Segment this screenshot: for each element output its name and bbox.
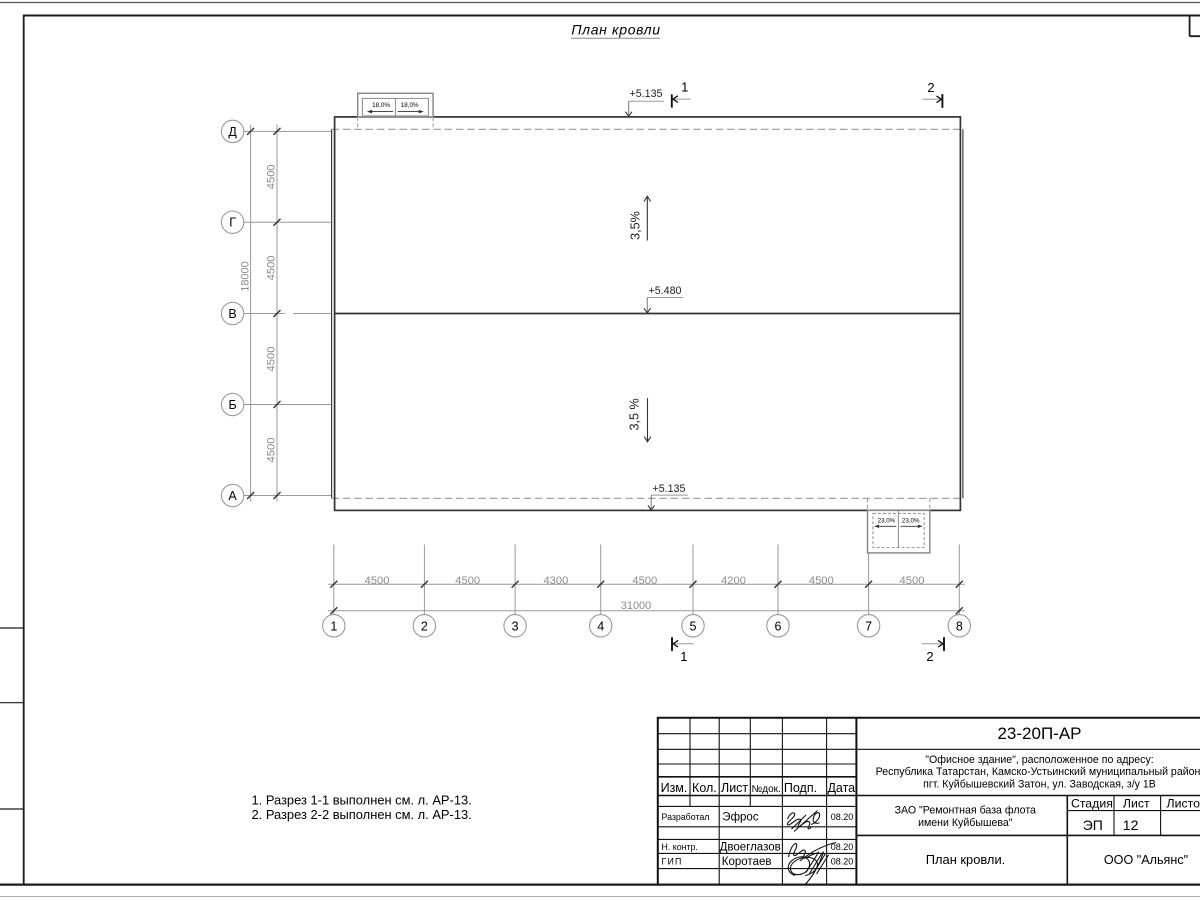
svg-text:23,0%: 23,0% — [902, 518, 920, 525]
svg-text:4500: 4500 — [455, 575, 480, 587]
svg-text:4500: 4500 — [900, 575, 925, 587]
svg-text:+5.135: +5.135 — [630, 88, 663, 100]
svg-text:Подп.: Подп. — [784, 781, 817, 795]
svg-text:Стадия: Стадия — [1071, 796, 1113, 810]
svg-text:Эфрос: Эфрос — [722, 812, 759, 824]
svg-text:8: 8 — [956, 619, 963, 633]
svg-text:имени Куйбышева": имени Куйбышева" — [918, 817, 1013, 829]
svg-text:5: 5 — [690, 619, 697, 633]
svg-text:План кровли.: План кровли. — [926, 852, 1006, 867]
svg-text:4: 4 — [597, 619, 604, 633]
svg-text:08.20: 08.20 — [831, 812, 854, 822]
svg-text:пгт. Куйбышевский Затон, ул. З: пгт. Куйбышевский Затон, ул. Заводская, … — [923, 778, 1156, 790]
svg-text:№док.: №док. — [752, 784, 781, 795]
svg-text:4300: 4300 — [543, 575, 568, 587]
svg-text:3,5%: 3,5% — [628, 211, 642, 240]
svg-text:Кол.: Кол. — [692, 781, 717, 795]
svg-text:Двоеглазов: Двоеглазов — [720, 841, 781, 853]
svg-text:"Офисное здание", расположенно: "Офисное здание", расположенное по адрес… — [925, 754, 1153, 766]
svg-text:1. Разрез 1-1 выполнен см. л.: 1. Разрез 1-1 выполнен см. л. АР-13. — [252, 793, 472, 808]
svg-text:Листов: Листов — [1167, 796, 1200, 810]
svg-text:08.20: 08.20 — [831, 857, 854, 867]
svg-text:3: 3 — [512, 619, 519, 633]
svg-text:ООО "Альянс": ООО "Альянс" — [1104, 853, 1188, 867]
svg-text:2: 2 — [926, 649, 933, 664]
svg-text:1: 1 — [680, 649, 687, 664]
svg-text:4500: 4500 — [266, 255, 278, 280]
svg-text:1: 1 — [330, 619, 337, 633]
svg-text:18000: 18000 — [240, 261, 252, 292]
svg-text:23,0%: 23,0% — [878, 518, 896, 525]
svg-text:4500: 4500 — [266, 164, 278, 189]
svg-text:План кровли: План кровли — [571, 22, 660, 38]
svg-text:2: 2 — [927, 80, 934, 95]
svg-text:18,0%: 18,0% — [401, 102, 419, 109]
svg-text:Коротаев: Коротаев — [722, 856, 772, 868]
svg-text:23-20П-АР: 23-20П-АР — [997, 724, 1081, 743]
svg-text:Лист: Лист — [1123, 796, 1150, 810]
svg-text:7: 7 — [865, 619, 872, 633]
svg-text:31000: 31000 — [621, 600, 652, 612]
svg-text:ЭП: ЭП — [1083, 817, 1103, 833]
svg-text:3,5 %: 3,5 % — [628, 398, 642, 430]
svg-text:Лист: Лист — [721, 781, 748, 795]
svg-text:2: 2 — [421, 619, 428, 633]
svg-text:12: 12 — [1123, 817, 1139, 833]
svg-text:Г: Г — [229, 216, 236, 230]
svg-text:В: В — [228, 307, 236, 321]
svg-text:А: А — [228, 489, 237, 503]
svg-text:Разработал: Разработал — [662, 812, 710, 822]
svg-text:ГИП: ГИП — [662, 857, 683, 867]
svg-text:4500: 4500 — [266, 347, 278, 372]
svg-text:+5.135: +5.135 — [653, 483, 686, 495]
svg-text:Б: Б — [228, 398, 236, 412]
svg-text:+5.480: +5.480 — [649, 285, 682, 297]
svg-text:Республика Татарстан, Камско-У: Республика Татарстан, Камско-Устьинский … — [876, 766, 1200, 778]
svg-text:4500: 4500 — [809, 575, 834, 587]
svg-text:4200: 4200 — [721, 575, 746, 587]
svg-text:Изм.: Изм. — [661, 781, 688, 795]
svg-text:4500: 4500 — [365, 575, 390, 587]
svg-text:2. Разрез 2-2 выполнен см. л.: 2. Разрез 2-2 выполнен см. л. АР-13. — [252, 807, 472, 822]
svg-text:4500: 4500 — [266, 438, 278, 463]
svg-text:18,0%: 18,0% — [372, 102, 390, 109]
svg-text:1: 1 — [681, 80, 688, 95]
svg-text:08.20: 08.20 — [831, 842, 854, 852]
svg-text:Дата: Дата — [827, 781, 855, 795]
svg-text:ЗАО "Ремонтная база флота: ЗАО "Ремонтная база флота — [895, 805, 1036, 817]
svg-text:4500: 4500 — [632, 575, 657, 587]
svg-text:Д: Д — [228, 125, 237, 139]
svg-text:Н. контр.: Н. контр. — [662, 842, 698, 852]
svg-text:6: 6 — [775, 619, 782, 633]
